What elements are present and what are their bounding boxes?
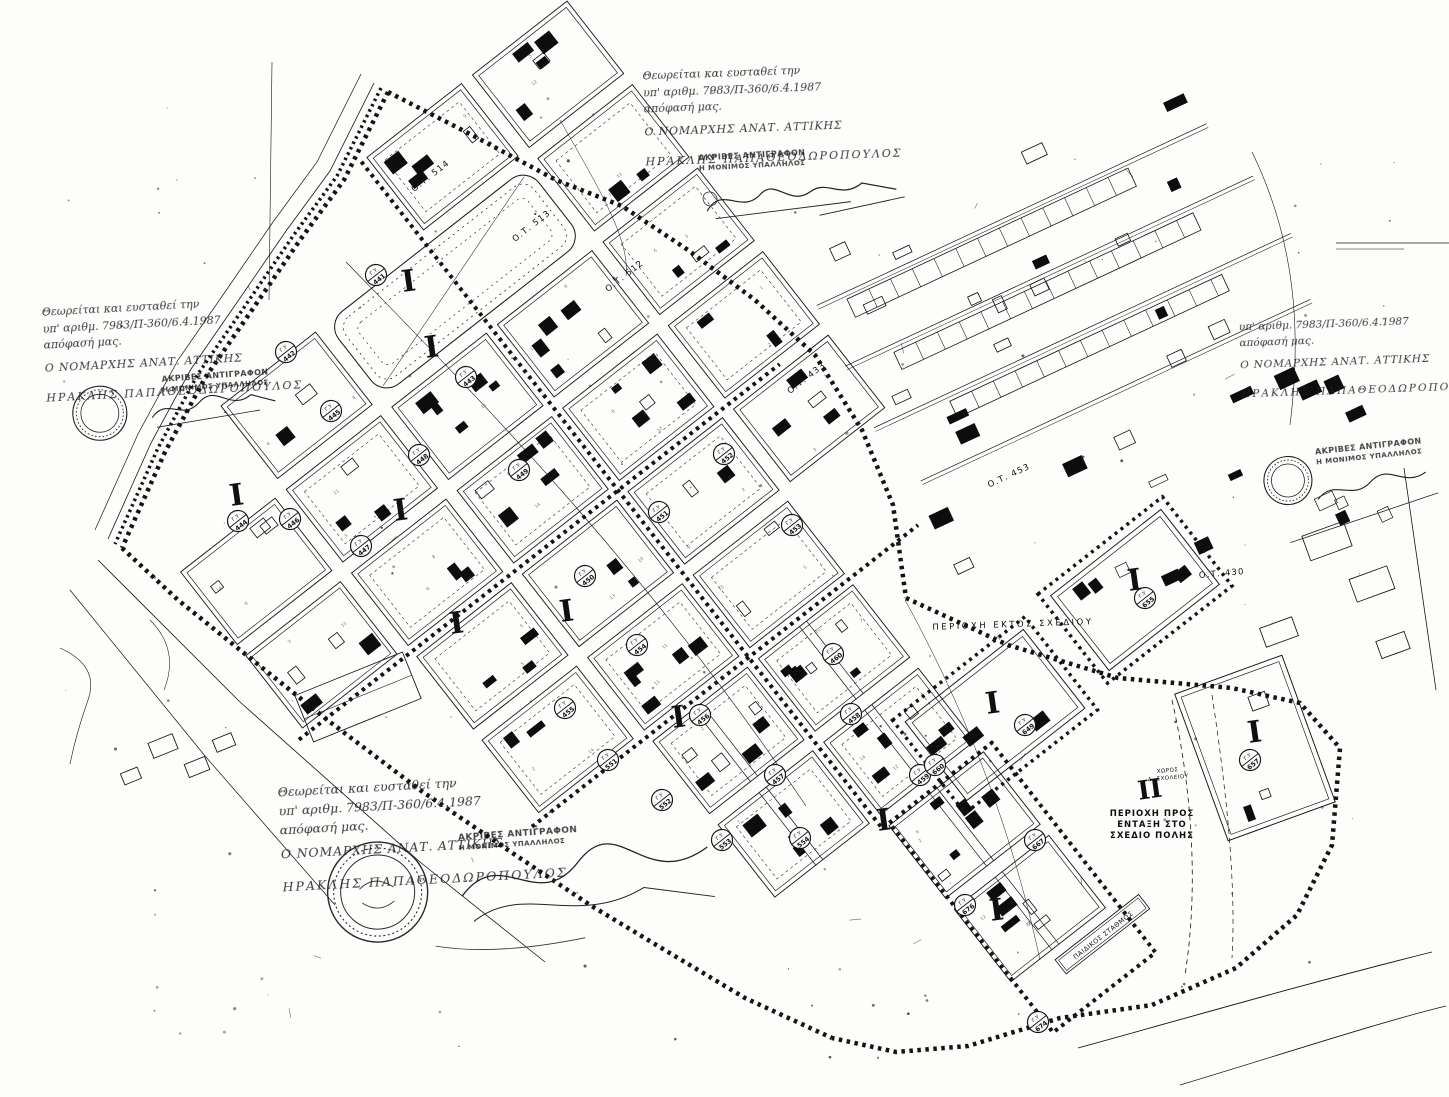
svg-text:I: I: [391, 492, 410, 529]
svg-text:12: 12: [530, 79, 538, 87]
svg-text:1: 1: [759, 285, 765, 292]
svg-text:6: 6: [425, 586, 431, 593]
svg-text:8: 8: [351, 394, 357, 401]
svg-text:3: 3: [684, 233, 690, 240]
svg-text:3: 3: [287, 639, 293, 646]
svg-text:6: 6: [611, 408, 617, 415]
svg-text:I: I: [399, 263, 418, 300]
block-number-marker: Γ.Υ446: [275, 504, 304, 533]
outside-plan-label: ΠΕΡΙΟΧΗ ΕΚΤΟΣ ΣΧΕΔΙΟΥ: [932, 617, 1093, 633]
svg-text:11: 11: [332, 488, 340, 496]
block-number-marker: Γ.Υ649: [1010, 710, 1039, 739]
svg-text:12: 12: [1025, 920, 1033, 928]
svg-text:6: 6: [563, 283, 569, 290]
svg-text:5: 5: [802, 564, 808, 571]
block-number-marker: Γ.Υ450: [570, 561, 599, 590]
svg-text:3: 3: [812, 447, 818, 454]
svg-text:Ο.Τ. 430: Ο.Τ. 430: [1199, 567, 1246, 581]
certification-stamp-bottom: ΑΚΡΙΒΕΣ ΑΝΤΙΓΡΑΦΟΝΗ ΜΟΝΙΜΟΣ ΥΠΑΛΛΗΛΟΣ: [307, 806, 736, 979]
to-join-plan-label: ΕΝΤΑΞΗ ΣΤΟ: [1117, 820, 1187, 830]
block-number-marker: Γ.Υ667: [1020, 825, 1049, 854]
svg-text:2: 2: [700, 726, 706, 733]
approval-annotation-right: υπ' αριθμ. 7983/Π-360/6.4.1987 απόφασή μ…: [1239, 312, 1449, 404]
svg-text:14: 14: [587, 747, 595, 755]
block-number-marker: Γ.Υ676: [950, 890, 979, 919]
block-number-marker: Γ.Υ454: [622, 630, 651, 659]
certification-stamp-right: ΑΚΡΙΒΕΣ ΑΝΤΙΓΡΑΦΟΝΗ ΜΟΝΙΜΟΣ ΥΠΑΛΛΗΛΟΣ: [1251, 430, 1449, 563]
svg-text:Ο.Τ. 513: Ο.Τ. 513: [511, 208, 553, 244]
approval-line: Ο ΝΟΜΑΡΧΗΣ ΑΝΑΤ. ΑΤΤΙΚΗΣ: [1240, 349, 1449, 373]
block-number-marker: Γ.Υ451: [644, 497, 673, 526]
svg-text:I: I: [557, 593, 576, 630]
block-number-marker: Γ.Υ455: [550, 693, 579, 722]
block-number-marker: Γ.Υ441: [361, 260, 390, 289]
svg-text:14: 14: [859, 754, 867, 762]
svg-text:I: I: [1245, 714, 1264, 751]
block-number-marker: Γ.Υ554: [785, 823, 814, 852]
block-number-marker: Γ.Υ445: [316, 396, 345, 425]
svg-text:2: 2: [741, 487, 747, 494]
svg-text:12: 12: [892, 764, 900, 772]
block-number-marker: Γ.Υ674: [1023, 1007, 1052, 1036]
scanned-town-plan-sheet: 9912584117614311111061263311686141261255…: [0, 0, 1449, 1097]
svg-text:8: 8: [431, 554, 437, 561]
block-number-marker: Γ.Υ453: [777, 510, 806, 539]
svg-text:ΠΑΙΔΙΚΟΣ ΣΤΑΘΜΟΣ: ΠΑΙΔΙΚΟΣ ΣΤΑΘΜΟΣ: [1072, 910, 1135, 962]
block-number-marker: Γ.Υ452: [709, 439, 738, 468]
svg-text:11: 11: [340, 620, 348, 628]
to-join-plan-label: ΠΕΡΙΟΧΗ ΠΡΟΣ: [1110, 809, 1195, 819]
approval-line: Ο ΝΟΜΑΡΧΗΣ ΑΝΑΤ. ΑΤΤΙΚΗΣ: [644, 115, 902, 140]
to-join-plan-label: ΣΧΕΔΙΟ ΠΟΛΗΣ: [1110, 831, 1194, 841]
nursery-label: ΠΑΙΔΙΚΟΣ ΣΤΑΘΜΟΣ: [1055, 894, 1150, 973]
svg-text:14: 14: [534, 501, 542, 509]
svg-text:Ο.Τ. 453: Ο.Τ. 453: [986, 462, 1032, 490]
svg-text:12: 12: [656, 425, 664, 433]
svg-text:3: 3: [343, 533, 349, 540]
svg-text:2: 2: [917, 838, 923, 845]
certification-stamp-top: ΑΚΡΙΒΕΣ ΑΝΤΙΓΡΑΦΟΝΗ ΜΟΝΙΜΟΣ ΥΠΑΛΛΗΛΟΣ: [698, 143, 912, 230]
svg-text:I: I: [983, 685, 1002, 722]
signature-scribble: [699, 163, 911, 226]
block-number-marker: Γ.Υ456: [685, 700, 714, 729]
svg-text:13: 13: [609, 593, 617, 601]
svg-text:14: 14: [215, 585, 223, 593]
svg-text:I: I: [669, 699, 688, 736]
block-number-marker: Γ.Υ448: [404, 440, 433, 469]
svg-text:I: I: [227, 477, 246, 514]
svg-text:7: 7: [859, 617, 865, 624]
svg-text:I: I: [987, 892, 1006, 929]
svg-text:12: 12: [979, 914, 987, 922]
svg-text:10: 10: [637, 556, 645, 564]
block-number-marker: Γ.Υ460: [818, 639, 847, 668]
svg-text:9: 9: [915, 829, 921, 836]
svg-text:6: 6: [653, 248, 659, 255]
svg-text:6: 6: [244, 600, 250, 607]
svg-text:9: 9: [462, 113, 468, 120]
svg-text:5: 5: [519, 623, 525, 630]
svg-text:I: I: [422, 329, 441, 366]
svg-text:I: I: [874, 802, 893, 839]
svg-text:11: 11: [661, 642, 669, 650]
svg-text:10: 10: [717, 584, 725, 592]
svg-text:11: 11: [653, 679, 661, 687]
svg-text:12: 12: [814, 627, 822, 635]
svg-text:11: 11: [616, 171, 624, 179]
certification-stamp-left: ΑΚΡΙΒΕΣ ΑΝΤΙΓΡΑΦΟΝΗ ΜΟΝΙΜΟΣ ΥΠΑΛΛΗΛΟΣ: [57, 364, 292, 462]
svg-text:11: 11: [480, 402, 488, 410]
block-number-marker: Γ.Υ449: [504, 455, 533, 484]
svg-text:I: I: [1125, 562, 1144, 599]
school-site-label: ΧΩΡΟΣ: [1157, 767, 1179, 775]
